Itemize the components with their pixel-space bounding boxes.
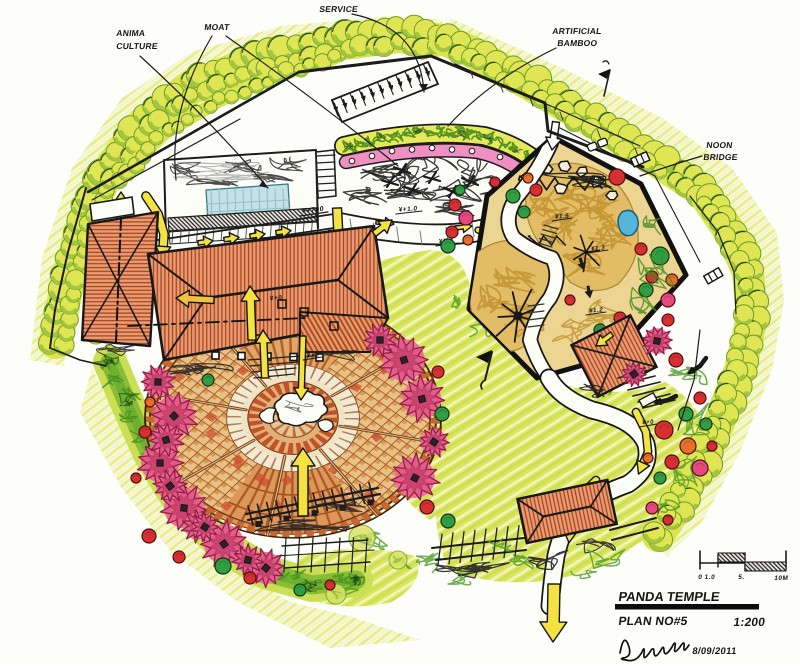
svg-text:CULTURE: CULTURE [116,41,159,51]
svg-text:ARTIFICIAL: ARTIFICIAL [552,26,603,36]
svg-text:BAMBOO: BAMBOO [557,38,598,48]
svg-text:SERVICE: SERVICE [319,4,359,14]
svg-text:5.: 5. [738,574,745,581]
svg-text:10M: 10M [774,575,789,582]
svg-text:8/09/2011: 8/09/2011 [692,646,738,657]
svg-text:0 1.0: 0 1.0 [698,574,716,581]
svg-text:PANDA TEMPLE: PANDA TEMPLE [618,589,721,604]
svg-text:1:200: 1:200 [733,615,767,629]
svg-text:BRIDGE: BRIDGE [703,152,739,162]
svg-text:¥+0: ¥+0 [270,294,283,302]
svg-text:NOON: NOON [706,140,734,150]
svg-text:MOAT: MOAT [204,22,231,32]
svg-text:ANIMA: ANIMA [116,28,146,38]
svg-text:PLAN NO#5: PLAN NO#5 [618,614,689,628]
